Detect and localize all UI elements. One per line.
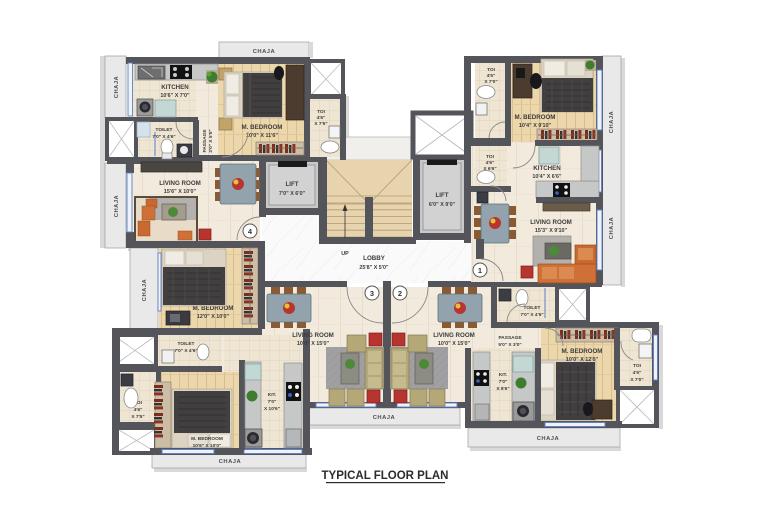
svg-text:2: 2 bbox=[398, 289, 402, 298]
svg-text:M. BEDROOM: M. BEDROOM bbox=[562, 348, 603, 355]
svg-text:X 10'6": X 10'6" bbox=[264, 406, 280, 412]
svg-text:4'6": 4'6" bbox=[486, 160, 495, 166]
svg-text:CHAJA: CHAJA bbox=[114, 75, 120, 98]
svg-text:LIFT: LIFT bbox=[285, 181, 298, 188]
svg-text:CHAJA: CHAJA bbox=[219, 459, 242, 465]
svg-text:CHAJA: CHAJA bbox=[373, 415, 396, 421]
svg-text:15'6" X 10'0": 15'6" X 10'0" bbox=[164, 189, 197, 195]
svg-text:7'0" X 4'6": 7'0" X 4'6" bbox=[174, 348, 197, 354]
svg-text:X 7'5": X 7'5" bbox=[314, 121, 327, 127]
svg-text:3'0" X 5'5": 3'0" X 5'5" bbox=[208, 129, 214, 152]
svg-text:X 7'0": X 7'0" bbox=[630, 377, 643, 383]
svg-text:7'0": 7'0" bbox=[268, 399, 277, 405]
svg-text:TOI: TOI bbox=[486, 154, 495, 160]
svg-text:1: 1 bbox=[478, 266, 482, 275]
svg-text:TOI: TOI bbox=[317, 109, 326, 115]
svg-text:15'3" X 9'10": 15'3" X 9'10" bbox=[535, 228, 568, 234]
svg-text:7'0" X 4'6": 7'0" X 4'6" bbox=[152, 134, 175, 140]
svg-text:10'0" X 11'6": 10'0" X 11'6" bbox=[246, 133, 278, 139]
svg-text:TOILET: TOILET bbox=[178, 341, 195, 347]
svg-text:10'4" X 9'10": 10'4" X 9'10" bbox=[519, 123, 552, 129]
svg-text:PASSAGE: PASSAGE bbox=[498, 335, 522, 341]
svg-text:KIT.: KIT. bbox=[499, 372, 508, 378]
svg-text:CHAJA: CHAJA bbox=[609, 216, 615, 239]
svg-text:4'6": 4'6" bbox=[317, 115, 326, 121]
svg-text:7'0" X 6'0": 7'0" X 6'0" bbox=[279, 191, 306, 197]
svg-text:M. BEDROOM: M. BEDROOM bbox=[515, 114, 556, 121]
svg-text:LIVING ROOM: LIVING ROOM bbox=[292, 332, 334, 339]
svg-text:10'6" X 7'0": 10'6" X 7'0" bbox=[160, 93, 190, 99]
svg-text:X 7'0": X 7'0" bbox=[484, 79, 497, 85]
svg-text:LOBBY: LOBBY bbox=[363, 255, 386, 262]
svg-text:TYPICAL FLOOR PLAN: TYPICAL FLOOR PLAN bbox=[322, 470, 449, 482]
svg-text:KIT.: KIT. bbox=[268, 392, 277, 398]
svg-text:4'6": 4'6" bbox=[134, 407, 143, 413]
svg-text:TOILET: TOILET bbox=[524, 305, 541, 311]
svg-text:10'4" X 6'6": 10'4" X 6'6" bbox=[532, 174, 562, 180]
svg-text:LIVING ROOM: LIVING ROOM bbox=[530, 219, 572, 226]
svg-text:X 8'6": X 8'6" bbox=[496, 386, 509, 392]
svg-text:CHAJA: CHAJA bbox=[609, 110, 615, 133]
svg-text:CHAJA: CHAJA bbox=[253, 49, 276, 55]
svg-text:TOILET: TOILET bbox=[156, 127, 173, 133]
svg-text:10'0" X 12'0": 10'0" X 12'0" bbox=[566, 357, 599, 363]
svg-text:TOI: TOI bbox=[487, 67, 496, 73]
svg-text:M. BEDROOM: M. BEDROOM bbox=[242, 124, 283, 131]
svg-text:10'0" X 15'0": 10'0" X 15'0" bbox=[297, 341, 330, 347]
svg-text:KITCHEN: KITCHEN bbox=[161, 84, 189, 91]
svg-text:PASSAGE: PASSAGE bbox=[202, 129, 208, 153]
svg-text:6'0" X 9'0": 6'0" X 9'0" bbox=[429, 202, 456, 208]
svg-text:7'0": 7'0" bbox=[499, 379, 508, 385]
svg-text:10'0" X 15'0": 10'0" X 15'0" bbox=[438, 341, 471, 347]
svg-text:5'0" X 3'0": 5'0" X 3'0" bbox=[498, 342, 521, 348]
svg-text:25'8" X 5'0": 25'8" X 5'0" bbox=[359, 265, 389, 271]
svg-text:CHAJA: CHAJA bbox=[142, 278, 148, 301]
svg-text:LIVING ROOM: LIVING ROOM bbox=[159, 180, 201, 187]
svg-text:KITCHEN: KITCHEN bbox=[533, 165, 561, 172]
svg-text:4'5": 4'5" bbox=[487, 73, 496, 79]
svg-text:3: 3 bbox=[370, 289, 374, 298]
svg-text:7'0" X 4'6": 7'0" X 4'6" bbox=[520, 312, 543, 318]
svg-text:LIVING ROOM: LIVING ROOM bbox=[433, 332, 475, 339]
svg-text:UP: UP bbox=[341, 251, 349, 257]
svg-text:X 7'5": X 7'5" bbox=[131, 414, 144, 420]
svg-text:4'5": 4'5" bbox=[633, 370, 642, 376]
svg-text:CHAJA: CHAJA bbox=[114, 194, 120, 217]
svg-text:TOI: TOI bbox=[633, 363, 642, 369]
svg-text:10'6" X 10'0": 10'6" X 10'0" bbox=[193, 443, 222, 449]
svg-text:CHAJA: CHAJA bbox=[537, 436, 560, 442]
svg-text:LIFT: LIFT bbox=[435, 192, 448, 199]
svg-text:M. BEDROOM: M. BEDROOM bbox=[191, 436, 223, 442]
svg-text:12'0" X 10'0": 12'0" X 10'0" bbox=[197, 314, 230, 320]
